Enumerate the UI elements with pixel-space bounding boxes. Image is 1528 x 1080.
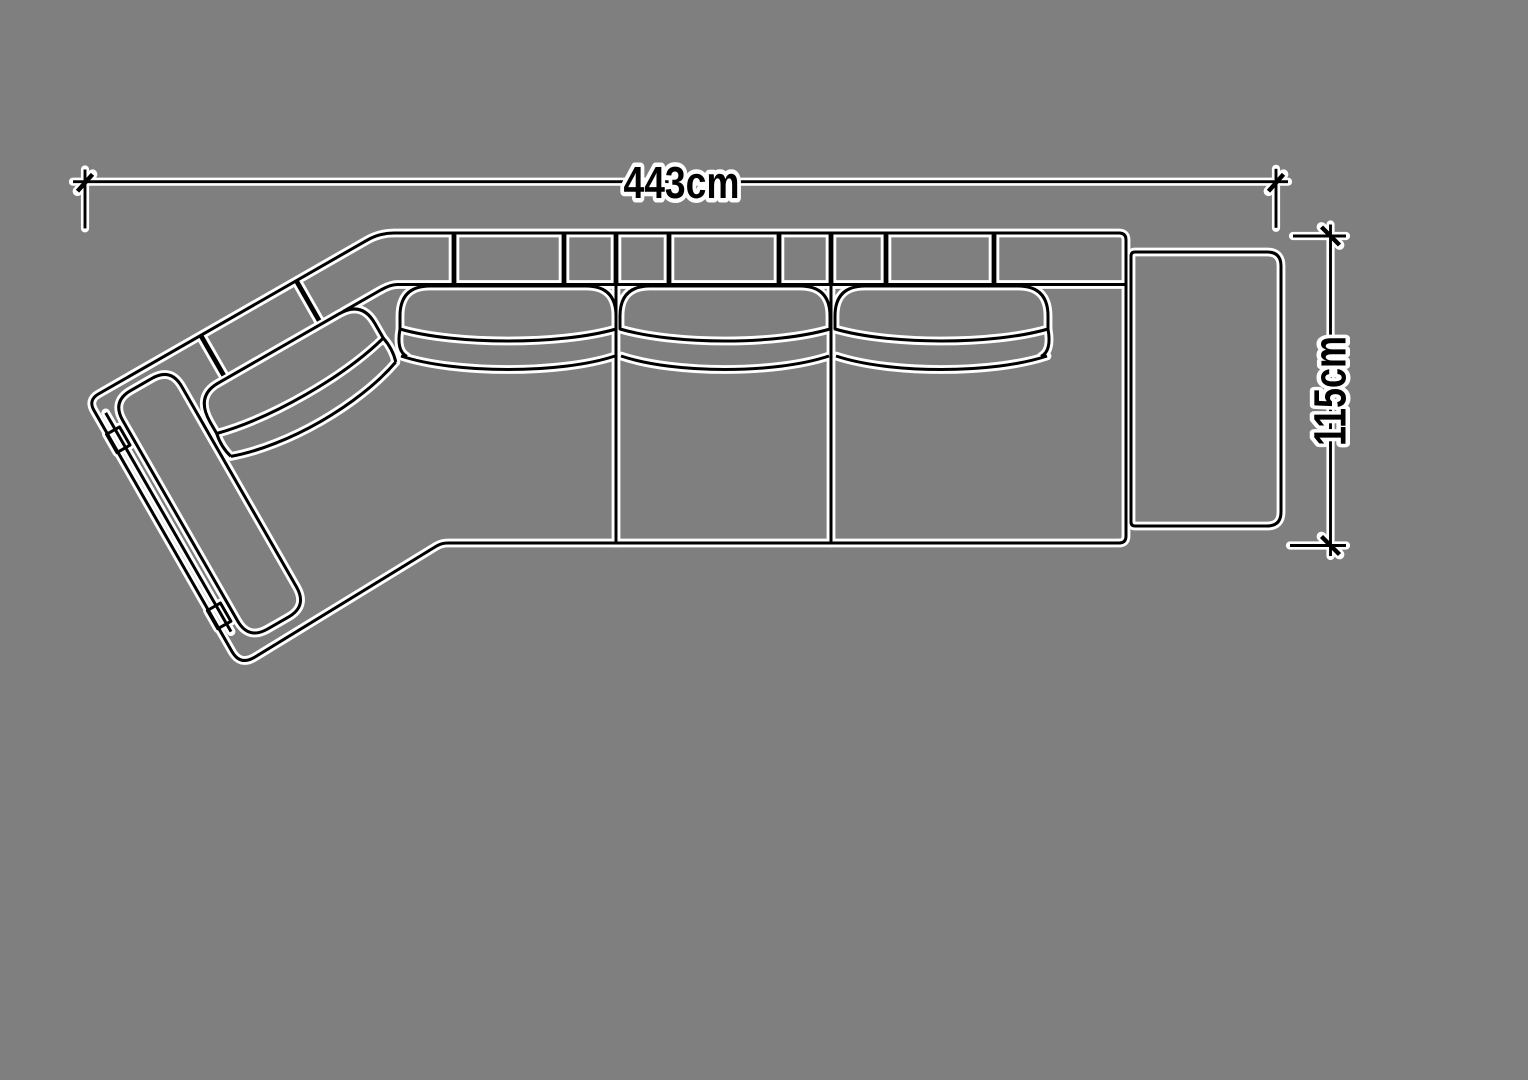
svg-text:443cm: 443cm	[623, 157, 739, 208]
svg-text:115cm: 115cm	[1305, 336, 1356, 446]
